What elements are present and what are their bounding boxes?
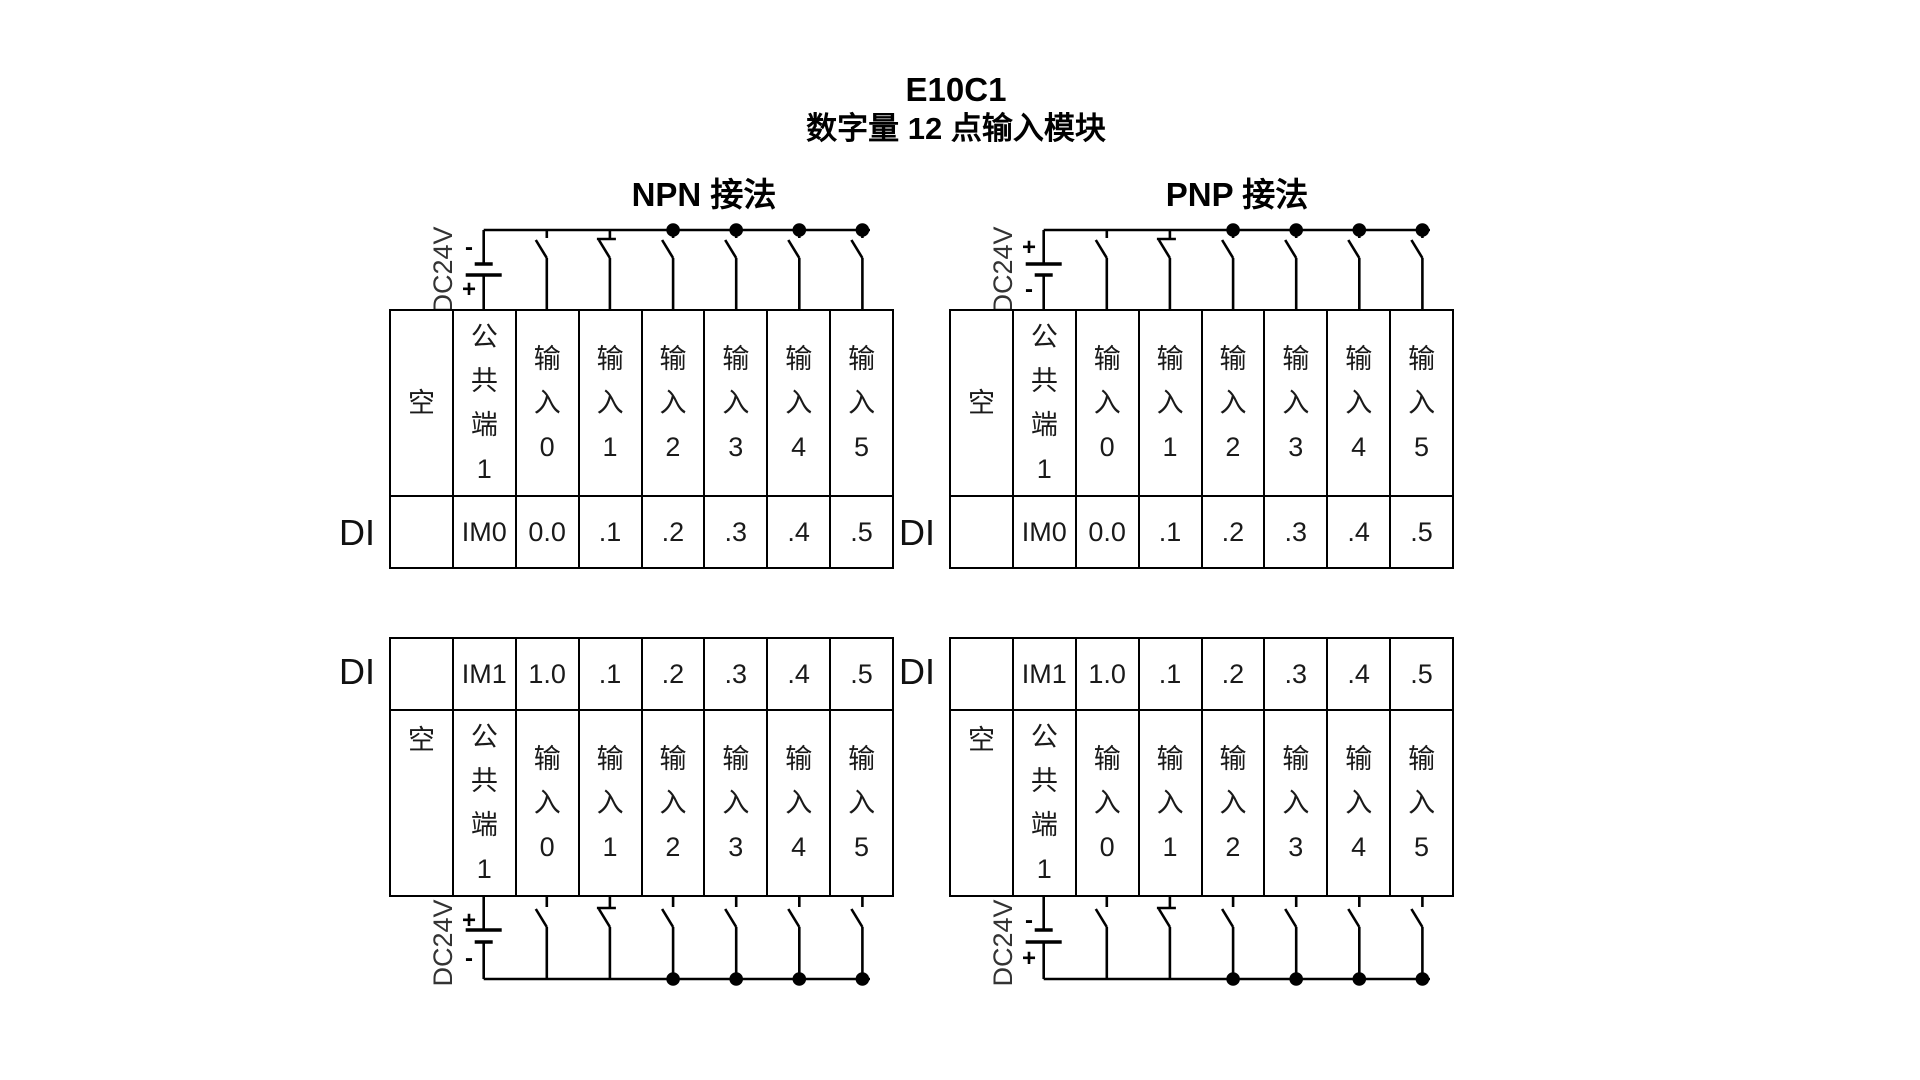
terminal-label: 输入5 xyxy=(847,737,877,869)
address-cell: .3 xyxy=(1265,497,1326,567)
terminal-label: 输入2 xyxy=(658,737,688,869)
switch-input-3 xyxy=(725,897,743,986)
switch-input-1 xyxy=(597,230,616,310)
wiring-diagram-page: E10C1 数字量 12 点输入模块 NPN 接法 PNP 接法 xyxy=(0,0,1920,1080)
terminal-cell: 输入1 xyxy=(580,311,641,495)
terminal-label: 输入5 xyxy=(1407,737,1437,869)
switch-input-3 xyxy=(1285,897,1303,986)
terminal-label: 空 xyxy=(406,381,436,425)
address-cell: .3 xyxy=(1265,639,1326,709)
switch-input-5 xyxy=(851,223,869,310)
address-cell: .5 xyxy=(1391,497,1452,567)
terminal-cell: 输入3 xyxy=(1265,311,1326,495)
terminal-table-pnp-im1: IM1 1.0 .1 .2 .3 .4 .5 空 公共端1 输入0 输入1 输入… xyxy=(949,637,1454,897)
terminal-label: 输入1 xyxy=(595,737,625,869)
terminal-label: 输入3 xyxy=(1281,737,1311,869)
pnp-section-title: PNP 接法 xyxy=(1087,168,1387,216)
di-row-label: DI xyxy=(327,512,375,554)
switch-input-4 xyxy=(1348,223,1366,310)
terminal-cell: 输入0 xyxy=(1077,311,1138,495)
battery-polarity-sign: - xyxy=(1017,909,1041,933)
dc24v-label: DC24V xyxy=(989,895,1017,991)
terminal-cell: 输入4 xyxy=(768,711,829,895)
address-cell: .4 xyxy=(768,639,829,709)
terminal-label: 输入5 xyxy=(847,337,877,469)
address-cell: .5 xyxy=(831,639,892,709)
terminal-label: 空 xyxy=(966,718,996,762)
terminal-cell: 输入5 xyxy=(831,311,892,495)
address-cell: .3 xyxy=(705,497,766,567)
terminal-cell: 输入4 xyxy=(1328,311,1389,495)
terminal-cell: 输入5 xyxy=(1391,711,1452,895)
dc24v-label: DC24V xyxy=(989,222,1017,318)
terminal-cell: 输入2 xyxy=(643,311,704,495)
address-cell xyxy=(951,639,1012,709)
address-cell xyxy=(391,639,452,709)
battery-polarity-sign: + xyxy=(1017,947,1041,971)
switch-input-2 xyxy=(1222,897,1240,986)
terminal-label: 输入2 xyxy=(1218,337,1248,469)
dc24v-label: DC24V xyxy=(429,222,457,318)
battery-polarity-sign: - xyxy=(457,947,481,971)
terminal-cell: 公共端1 xyxy=(454,711,515,895)
terminal-label: 输入1 xyxy=(1155,737,1185,869)
switch-input-0 xyxy=(536,897,547,979)
module-model: E10C1 xyxy=(456,70,1456,110)
address-cell: .5 xyxy=(1391,639,1452,709)
page-title: E10C1 数字量 12 点输入模块 xyxy=(456,70,1456,148)
address-cell: IM1 xyxy=(454,639,515,709)
terminal-table-pnp-im0: 空 公共端1 输入0 输入1 输入2 输入3 输入4 输入5 IM0 0.0 .… xyxy=(949,309,1454,569)
terminal-label: 输入3 xyxy=(721,337,751,469)
terminal-label: 输入5 xyxy=(1407,337,1437,469)
terminal-table-npn-im0: 空 公共端1 输入0 输入1 输入2 输入3 输入4 输入5 IM0 0.0 .… xyxy=(389,309,894,569)
terminal-label: 输入4 xyxy=(784,337,814,469)
terminal-label: 空 xyxy=(966,381,996,425)
terminal-cell: 输入0 xyxy=(517,711,578,895)
switch-input-3 xyxy=(1285,223,1303,310)
terminal-label: 输入4 xyxy=(1344,337,1374,469)
address-cell: .4 xyxy=(768,497,829,567)
terminal-cell: 输入3 xyxy=(705,711,766,895)
diagram-pnp-im1: IM1 1.0 .1 .2 .3 .4 .5 空 公共端1 输入0 输入1 输入… xyxy=(949,637,1454,989)
terminal-cell: 公共端1 xyxy=(1014,311,1075,495)
battery-polarity-sign: - xyxy=(1017,278,1041,302)
switch-input-4 xyxy=(788,897,806,986)
address-cell: 0.0 xyxy=(517,497,578,567)
dc24v-label: DC24V xyxy=(429,895,457,991)
address-cell: .2 xyxy=(643,497,704,567)
terminal-label: 公共端1 xyxy=(469,315,499,491)
switch-input-3 xyxy=(725,223,743,310)
terminal-cell: 输入4 xyxy=(1328,711,1389,895)
terminal-label: 公共端1 xyxy=(1029,715,1059,891)
terminal-label: 输入0 xyxy=(1092,737,1122,869)
terminal-table-npn-im1: IM1 1.0 .1 .2 .3 .4 .5 空 公共端1 输入0 输入1 输入… xyxy=(389,637,894,897)
switch-input-1 xyxy=(597,897,616,979)
terminal-label: 公共端1 xyxy=(1029,315,1059,491)
terminal-cell: 输入2 xyxy=(643,711,704,895)
terminal-cell: 输入0 xyxy=(517,311,578,495)
address-cell: 1.0 xyxy=(1077,639,1138,709)
terminal-cell: 空 xyxy=(391,711,452,895)
address-cell: .1 xyxy=(1140,639,1201,709)
terminal-cell: 公共端1 xyxy=(1014,711,1075,895)
terminal-cell: 输入2 xyxy=(1203,711,1264,895)
address-cell: .2 xyxy=(643,639,704,709)
terminal-label: 输入0 xyxy=(532,337,562,469)
switch-input-0 xyxy=(536,230,547,310)
switch-input-0 xyxy=(1096,230,1107,310)
terminal-cell: 输入1 xyxy=(1140,311,1201,495)
switch-input-5 xyxy=(851,897,869,986)
terminal-label: 公共端1 xyxy=(469,715,499,891)
switch-input-2 xyxy=(662,223,680,310)
battery-polarity-sign: + xyxy=(457,278,481,302)
terminal-cell: 输入2 xyxy=(1203,311,1264,495)
terminal-label: 输入0 xyxy=(1092,337,1122,469)
address-cell: .2 xyxy=(1203,639,1264,709)
address-cell: .1 xyxy=(580,639,641,709)
address-cell: .5 xyxy=(831,497,892,567)
terminal-cell: 空 xyxy=(951,711,1012,895)
terminal-cell: 输入4 xyxy=(768,311,829,495)
address-cell xyxy=(391,497,452,567)
terminal-label: 输入1 xyxy=(1155,337,1185,469)
terminal-cell: 输入5 xyxy=(1391,311,1452,495)
switch-input-4 xyxy=(1348,897,1366,986)
address-cell: IM0 xyxy=(454,497,515,567)
switch-input-1 xyxy=(1157,230,1176,310)
terminal-cell: 输入0 xyxy=(1077,711,1138,895)
terminal-cell: 公共端1 xyxy=(454,311,515,495)
terminal-cell: 输入3 xyxy=(1265,711,1326,895)
terminal-label: 输入2 xyxy=(1218,737,1248,869)
address-cell xyxy=(951,497,1012,567)
module-description: 数字量 12 点输入模块 xyxy=(456,110,1456,148)
diagram-npn-im0: DC24V - + 空 公共端1 输入0 输入1 输入2 输入3 输入4 输入5… xyxy=(389,220,894,572)
diagram-pnp-im0: DC24V + - 空 公共端1 输入0 输入1 输入2 输入3 输入4 输入5… xyxy=(949,220,1454,572)
terminal-label: 输入3 xyxy=(721,737,751,869)
terminal-cell: 输入1 xyxy=(1140,711,1201,895)
terminal-label: 空 xyxy=(406,718,436,762)
address-cell: .1 xyxy=(1140,497,1201,567)
terminal-cell: 输入1 xyxy=(580,711,641,895)
battery-polarity-sign: + xyxy=(1017,236,1041,260)
terminal-label: 输入4 xyxy=(1344,737,1374,869)
terminal-label: 输入0 xyxy=(532,737,562,869)
address-cell: .4 xyxy=(1328,639,1389,709)
terminal-label: 输入2 xyxy=(658,337,688,469)
switch-input-2 xyxy=(1222,223,1240,310)
terminal-cell: 输入5 xyxy=(831,711,892,895)
battery-polarity-sign: - xyxy=(457,236,481,260)
address-cell: .2 xyxy=(1203,497,1264,567)
switch-input-1 xyxy=(1157,897,1176,979)
terminal-cell: 空 xyxy=(391,311,452,495)
di-row-label: DI xyxy=(887,651,935,693)
terminal-label: 输入4 xyxy=(784,737,814,869)
terminal-label: 输入3 xyxy=(1281,337,1311,469)
switch-input-4 xyxy=(788,223,806,310)
address-cell: .3 xyxy=(705,639,766,709)
switch-input-5 xyxy=(1411,897,1429,986)
address-cell: IM1 xyxy=(1014,639,1075,709)
address-cell: IM0 xyxy=(1014,497,1075,567)
terminal-label: 输入1 xyxy=(595,337,625,469)
address-cell: .1 xyxy=(580,497,641,567)
npn-section-title: NPN 接法 xyxy=(554,168,854,216)
terminal-cell: 空 xyxy=(951,311,1012,495)
switch-input-0 xyxy=(1096,897,1107,979)
switch-input-5 xyxy=(1411,223,1429,310)
di-row-label: DI xyxy=(887,512,935,554)
diagram-npn-im1: IM1 1.0 .1 .2 .3 .4 .5 空 公共端1 输入0 输入1 输入… xyxy=(389,637,894,989)
di-row-label: DI xyxy=(327,651,375,693)
switch-input-2 xyxy=(662,897,680,986)
terminal-cell: 输入3 xyxy=(705,311,766,495)
address-cell: 0.0 xyxy=(1077,497,1138,567)
address-cell: .4 xyxy=(1328,497,1389,567)
address-cell: 1.0 xyxy=(517,639,578,709)
battery-polarity-sign: + xyxy=(457,909,481,933)
